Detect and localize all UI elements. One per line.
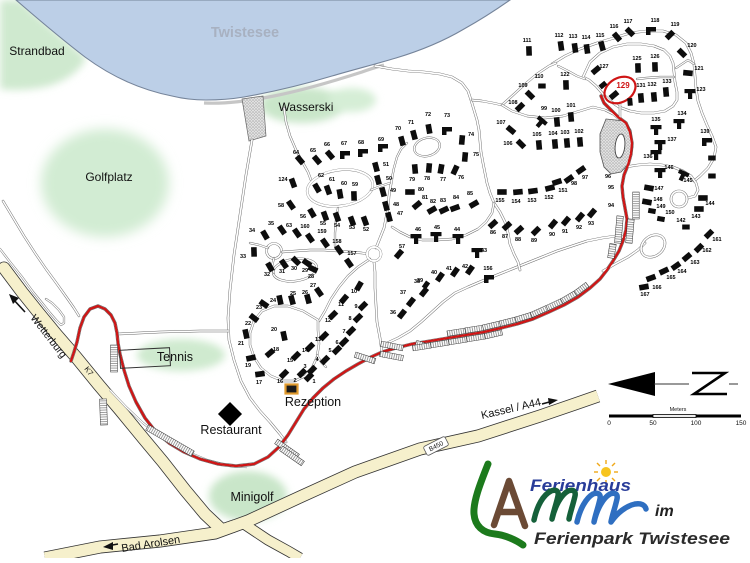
svg-text:137: 137 xyxy=(667,137,676,143)
svg-text:101: 101 xyxy=(566,103,575,109)
svg-text:89: 89 xyxy=(531,238,537,244)
svg-text:114: 114 xyxy=(582,35,592,41)
svg-text:36: 36 xyxy=(390,310,396,316)
svg-text:132: 132 xyxy=(647,82,656,88)
svg-text:104: 104 xyxy=(548,131,558,137)
svg-text:154: 154 xyxy=(511,199,521,205)
svg-text:134: 134 xyxy=(677,111,687,117)
svg-text:10: 10 xyxy=(351,289,357,295)
svg-text:115: 115 xyxy=(596,33,605,39)
svg-text:88: 88 xyxy=(515,237,521,243)
svg-text:96: 96 xyxy=(605,174,611,180)
svg-text:126: 126 xyxy=(650,54,659,60)
svg-text:69: 69 xyxy=(378,137,384,143)
svg-text:146: 146 xyxy=(664,165,673,171)
svg-text:17: 17 xyxy=(256,380,262,386)
svg-text:32: 32 xyxy=(264,272,270,278)
svg-text:29: 29 xyxy=(302,268,308,274)
svg-text:122: 122 xyxy=(560,72,569,78)
svg-text:57: 57 xyxy=(399,244,405,250)
svg-text:87: 87 xyxy=(502,234,508,240)
svg-text:100: 100 xyxy=(691,420,702,427)
svg-text:167: 167 xyxy=(640,292,649,298)
svg-text:85: 85 xyxy=(467,191,473,197)
svg-text:151: 151 xyxy=(558,188,567,194)
svg-text:147: 147 xyxy=(654,186,663,192)
svg-text:84: 84 xyxy=(453,195,460,201)
svg-text:Rezeption: Rezeption xyxy=(285,395,341,409)
svg-text:93: 93 xyxy=(588,221,594,227)
svg-text:131: 131 xyxy=(636,83,645,89)
svg-text:63: 63 xyxy=(286,223,292,229)
svg-text:Minigolf: Minigolf xyxy=(230,490,274,504)
svg-text:163: 163 xyxy=(690,260,699,266)
svg-text:129: 129 xyxy=(616,81,630,90)
svg-text:9: 9 xyxy=(354,304,357,310)
svg-text:111: 111 xyxy=(523,38,532,44)
svg-text:79: 79 xyxy=(409,177,415,183)
svg-text:119: 119 xyxy=(671,22,680,28)
svg-text:5: 5 xyxy=(328,348,331,354)
svg-text:91: 91 xyxy=(562,229,568,235)
svg-text:76: 76 xyxy=(458,175,464,181)
svg-text:Twistesee: Twistesee xyxy=(211,25,279,41)
svg-text:3: 3 xyxy=(303,364,306,370)
svg-text:124: 124 xyxy=(278,177,288,183)
svg-text:56: 56 xyxy=(300,214,306,220)
svg-text:166: 166 xyxy=(652,285,661,291)
svg-text:50: 50 xyxy=(386,176,392,182)
svg-text:31: 31 xyxy=(279,269,285,275)
svg-text:2: 2 xyxy=(293,378,296,384)
svg-text:Meters: Meters xyxy=(670,407,687,413)
svg-text:23: 23 xyxy=(256,305,262,311)
svg-text:Ferienpark Twistesee: Ferienpark Twistesee xyxy=(534,529,730,548)
svg-text:92: 92 xyxy=(576,225,582,231)
svg-text:Wasserski: Wasserski xyxy=(279,100,334,114)
svg-text:77: 77 xyxy=(440,177,446,183)
svg-text:14: 14 xyxy=(302,348,309,354)
svg-text:45: 45 xyxy=(434,225,440,231)
svg-text:133: 133 xyxy=(662,79,671,85)
svg-text:110: 110 xyxy=(535,74,544,80)
svg-text:162: 162 xyxy=(702,248,711,254)
svg-text:135: 135 xyxy=(651,117,660,123)
svg-text:160: 160 xyxy=(300,224,309,230)
svg-text:161: 161 xyxy=(712,237,721,243)
svg-text:30: 30 xyxy=(291,266,297,272)
svg-text:37: 37 xyxy=(400,290,406,296)
svg-text:150: 150 xyxy=(736,420,747,427)
svg-text:27: 27 xyxy=(310,283,316,289)
svg-text:153: 153 xyxy=(527,198,536,204)
svg-text:53: 53 xyxy=(349,225,355,231)
svg-text:1: 1 xyxy=(312,379,315,385)
svg-text:64: 64 xyxy=(293,150,300,156)
svg-text:50: 50 xyxy=(649,420,657,427)
svg-text:100: 100 xyxy=(551,108,560,114)
svg-text:97: 97 xyxy=(582,175,588,181)
svg-text:62: 62 xyxy=(318,173,324,179)
svg-text:15: 15 xyxy=(287,358,293,364)
svg-text:86: 86 xyxy=(490,230,496,236)
svg-text:68: 68 xyxy=(358,140,364,146)
svg-text:40: 40 xyxy=(431,270,437,276)
svg-text:Golfplatz: Golfplatz xyxy=(85,170,132,184)
svg-text:46: 46 xyxy=(415,227,421,233)
svg-text:61: 61 xyxy=(329,177,335,183)
svg-text:47: 47 xyxy=(397,211,403,217)
svg-text:44: 44 xyxy=(454,227,461,233)
svg-text:94: 94 xyxy=(608,203,615,209)
svg-text:78: 78 xyxy=(424,176,430,182)
svg-text:150: 150 xyxy=(665,210,674,216)
svg-text:113: 113 xyxy=(569,34,578,40)
svg-text:55: 55 xyxy=(320,221,326,227)
svg-text:127: 127 xyxy=(599,64,608,70)
svg-text:65: 65 xyxy=(310,148,316,154)
svg-text:112: 112 xyxy=(555,33,564,39)
svg-text:152: 152 xyxy=(544,195,553,201)
svg-text:22: 22 xyxy=(245,321,251,327)
svg-text:70: 70 xyxy=(395,126,401,132)
svg-text:102: 102 xyxy=(574,129,583,135)
svg-text:Tennis: Tennis xyxy=(157,350,193,364)
svg-text:51: 51 xyxy=(383,162,389,168)
svg-text:116: 116 xyxy=(610,24,619,30)
svg-text:98: 98 xyxy=(571,181,577,187)
svg-text:8: 8 xyxy=(348,316,351,322)
svg-text:13: 13 xyxy=(315,337,321,343)
svg-text:43: 43 xyxy=(481,248,487,254)
svg-text:155: 155 xyxy=(495,198,504,204)
svg-text:25: 25 xyxy=(290,291,296,297)
svg-text:Restaurant: Restaurant xyxy=(200,423,262,437)
svg-text:80: 80 xyxy=(418,187,424,193)
svg-text:24: 24 xyxy=(270,298,277,304)
svg-text:28: 28 xyxy=(308,274,314,280)
svg-text:136: 136 xyxy=(643,154,652,160)
svg-text:139: 139 xyxy=(700,129,709,135)
svg-text:149: 149 xyxy=(656,204,665,210)
svg-text:81: 81 xyxy=(422,195,428,201)
svg-text:109: 109 xyxy=(518,83,527,89)
svg-text:159: 159 xyxy=(317,229,326,235)
svg-text:99: 99 xyxy=(541,106,547,112)
svg-text:156: 156 xyxy=(483,266,492,272)
svg-text:im: im xyxy=(655,503,674,520)
svg-text:59: 59 xyxy=(352,182,358,188)
svg-text:164: 164 xyxy=(677,269,687,275)
svg-text:142: 142 xyxy=(676,218,685,224)
svg-text:75: 75 xyxy=(473,152,479,158)
svg-text:49: 49 xyxy=(390,188,396,194)
svg-text:117: 117 xyxy=(624,19,633,25)
svg-text:143: 143 xyxy=(691,214,700,220)
svg-text:7: 7 xyxy=(342,329,345,335)
svg-text:52: 52 xyxy=(363,227,369,233)
svg-text:48: 48 xyxy=(393,202,399,208)
svg-text:21: 21 xyxy=(238,341,244,347)
svg-text:18: 18 xyxy=(273,347,279,353)
svg-text:42: 42 xyxy=(462,264,468,270)
svg-text:125: 125 xyxy=(632,56,641,62)
svg-text:12: 12 xyxy=(325,318,331,324)
svg-text:11: 11 xyxy=(338,302,344,308)
svg-text:90: 90 xyxy=(549,232,555,238)
svg-text:144: 144 xyxy=(705,201,715,207)
svg-text:35: 35 xyxy=(268,221,274,227)
svg-text:73: 73 xyxy=(444,113,450,119)
svg-text:71: 71 xyxy=(408,120,414,126)
svg-text:58: 58 xyxy=(278,203,284,209)
svg-text:148: 148 xyxy=(653,197,662,203)
svg-text:41: 41 xyxy=(446,266,452,272)
svg-text:107: 107 xyxy=(496,120,505,126)
svg-text:67: 67 xyxy=(341,141,347,147)
svg-text:158: 158 xyxy=(332,239,341,245)
svg-text:66: 66 xyxy=(324,142,330,148)
svg-text:Strandbad: Strandbad xyxy=(9,44,64,58)
svg-text:120: 120 xyxy=(687,43,696,49)
svg-text:33: 33 xyxy=(240,254,246,260)
svg-text:105: 105 xyxy=(532,132,541,138)
svg-text:0: 0 xyxy=(607,420,611,427)
svg-text:145: 145 xyxy=(683,178,692,184)
svg-text:83: 83 xyxy=(440,198,446,204)
svg-text:103: 103 xyxy=(560,130,569,136)
svg-text:82: 82 xyxy=(430,199,436,205)
svg-text:157: 157 xyxy=(347,251,356,257)
svg-text:123: 123 xyxy=(696,87,705,93)
svg-text:72: 72 xyxy=(425,112,431,118)
svg-text:19: 19 xyxy=(245,363,251,369)
svg-text:121: 121 xyxy=(694,66,703,72)
svg-text:165: 165 xyxy=(666,275,675,281)
svg-text:95: 95 xyxy=(608,185,614,191)
svg-text:34: 34 xyxy=(249,228,256,234)
svg-text:16: 16 xyxy=(277,379,283,385)
svg-text:118: 118 xyxy=(651,18,660,24)
svg-text:6: 6 xyxy=(335,340,338,346)
svg-text:26: 26 xyxy=(302,290,308,296)
svg-text:20: 20 xyxy=(271,327,277,333)
svg-text:74: 74 xyxy=(468,132,475,138)
svg-text:60: 60 xyxy=(341,181,347,187)
svg-text:54: 54 xyxy=(334,223,341,229)
svg-text:106: 106 xyxy=(503,141,512,147)
svg-text:108: 108 xyxy=(508,100,517,106)
svg-text:39: 39 xyxy=(417,278,423,284)
